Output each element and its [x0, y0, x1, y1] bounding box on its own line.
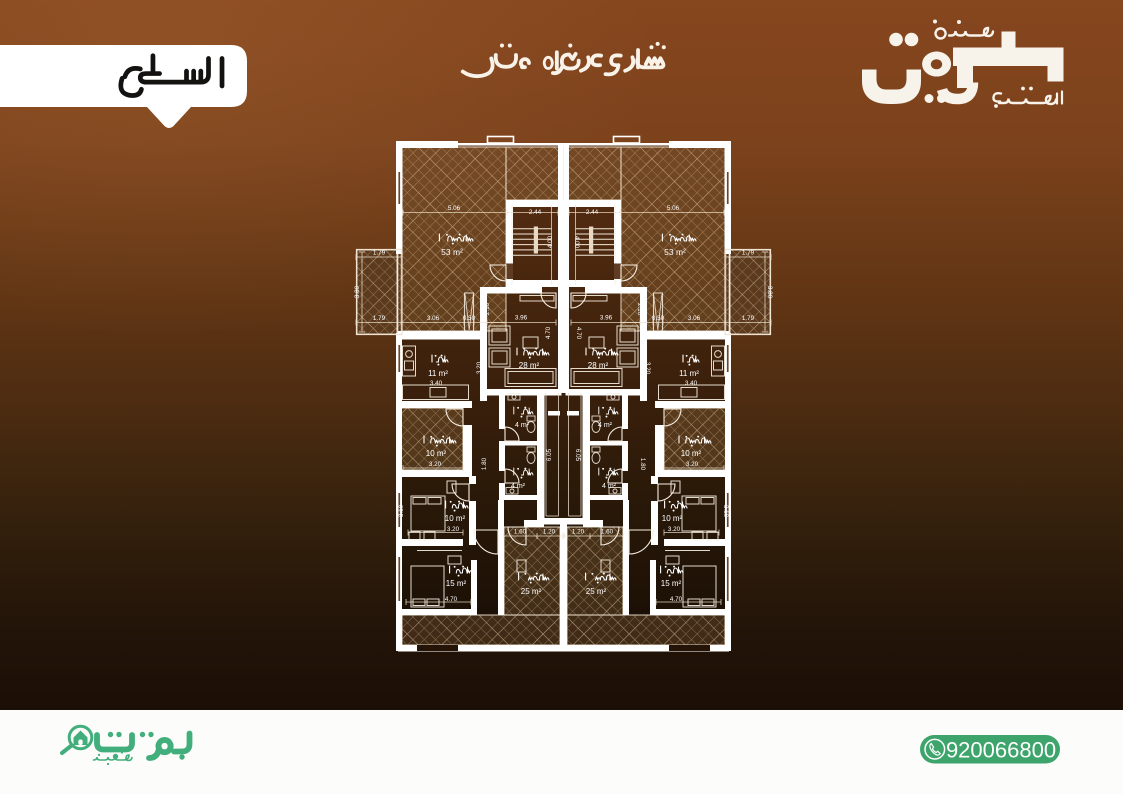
svg-text:15 m²: 15 m² — [661, 579, 682, 588]
svg-text:3.10: 3.10 — [722, 505, 729, 518]
svg-text:2.44: 2.44 — [586, 209, 599, 216]
svg-text:28 m²: 28 m² — [519, 361, 540, 370]
svg-text:920066800: 920066800 — [946, 738, 1056, 763]
svg-text:1.20: 1.20 — [572, 529, 585, 536]
svg-text:1.79: 1.79 — [373, 315, 386, 322]
svg-text:1.60: 1.60 — [514, 529, 527, 536]
svg-text:3.40: 3.40 — [430, 380, 443, 387]
svg-text:3.20: 3.20 — [686, 461, 699, 468]
svg-text:4 m²: 4 m² — [511, 483, 526, 490]
svg-text:11 m²: 11 m² — [679, 369, 699, 378]
svg-text:53 m²: 53 m² — [441, 247, 463, 257]
svg-text:4.70: 4.70 — [575, 327, 582, 340]
svg-text:15 m²: 15 m² — [446, 579, 467, 588]
svg-text:10 m²: 10 m² — [426, 449, 447, 458]
svg-text:3.80: 3.80 — [766, 286, 773, 299]
svg-text:10 m²: 10 m² — [445, 514, 466, 523]
svg-text:3.20: 3.20 — [644, 362, 651, 375]
svg-text:3.80: 3.80 — [354, 285, 361, 298]
svg-text:2.10: 2.10 — [484, 302, 491, 315]
svg-text:1.60: 1.60 — [601, 529, 614, 536]
svg-text:1.79: 1.79 — [373, 250, 386, 257]
svg-text:4 m²: 4 m² — [598, 422, 613, 429]
svg-text:25 m²: 25 m² — [586, 587, 607, 596]
svg-text:5.06: 5.06 — [667, 205, 680, 212]
svg-text:1.79: 1.79 — [742, 250, 755, 257]
svg-text:10 m²: 10 m² — [662, 514, 683, 523]
svg-text:3.20: 3.20 — [668, 526, 681, 533]
svg-text:4 m²: 4 m² — [515, 422, 530, 429]
svg-text:53 m²: 53 m² — [664, 247, 686, 257]
svg-text:4.70: 4.70 — [545, 326, 552, 339]
svg-text:2.10: 2.10 — [636, 303, 643, 316]
svg-text:3.06: 3.06 — [427, 315, 440, 322]
svg-text:3.20: 3.20 — [447, 526, 460, 533]
svg-text:25 m²: 25 m² — [521, 587, 542, 596]
svg-text:0.50: 0.50 — [463, 315, 476, 322]
svg-text:4.70: 4.70 — [670, 596, 683, 603]
svg-text:6.05: 6.05 — [546, 448, 553, 461]
svg-text:3.20: 3.20 — [476, 361, 483, 374]
svg-text:5.06: 5.06 — [448, 205, 461, 212]
svg-text:4.00: 4.00 — [547, 235, 554, 248]
svg-text:1.20: 1.20 — [543, 529, 556, 536]
svg-text:4.70: 4.70 — [445, 596, 458, 603]
svg-text:3.96: 3.96 — [600, 315, 613, 322]
svg-text:10 m²: 10 m² — [681, 449, 702, 458]
svg-text:28 m²: 28 m² — [588, 361, 609, 370]
svg-text:1.79: 1.79 — [742, 315, 755, 322]
svg-text:3.96: 3.96 — [515, 315, 528, 322]
svg-text:1.80: 1.80 — [481, 457, 488, 470]
svg-text:3.06: 3.06 — [688, 315, 701, 322]
svg-text:4.00: 4.00 — [573, 236, 580, 249]
svg-text:3.10: 3.10 — [398, 504, 405, 517]
svg-text:2.44: 2.44 — [529, 209, 542, 216]
svg-text:3.40: 3.40 — [685, 380, 698, 387]
svg-text:3.20: 3.20 — [429, 461, 442, 468]
svg-text:6.05: 6.05 — [574, 449, 581, 462]
svg-text:11 m²: 11 m² — [428, 369, 448, 378]
svg-text:0.50: 0.50 — [652, 315, 665, 322]
svg-text:1.80: 1.80 — [639, 458, 646, 471]
svg-text:4 m²: 4 m² — [602, 483, 617, 490]
